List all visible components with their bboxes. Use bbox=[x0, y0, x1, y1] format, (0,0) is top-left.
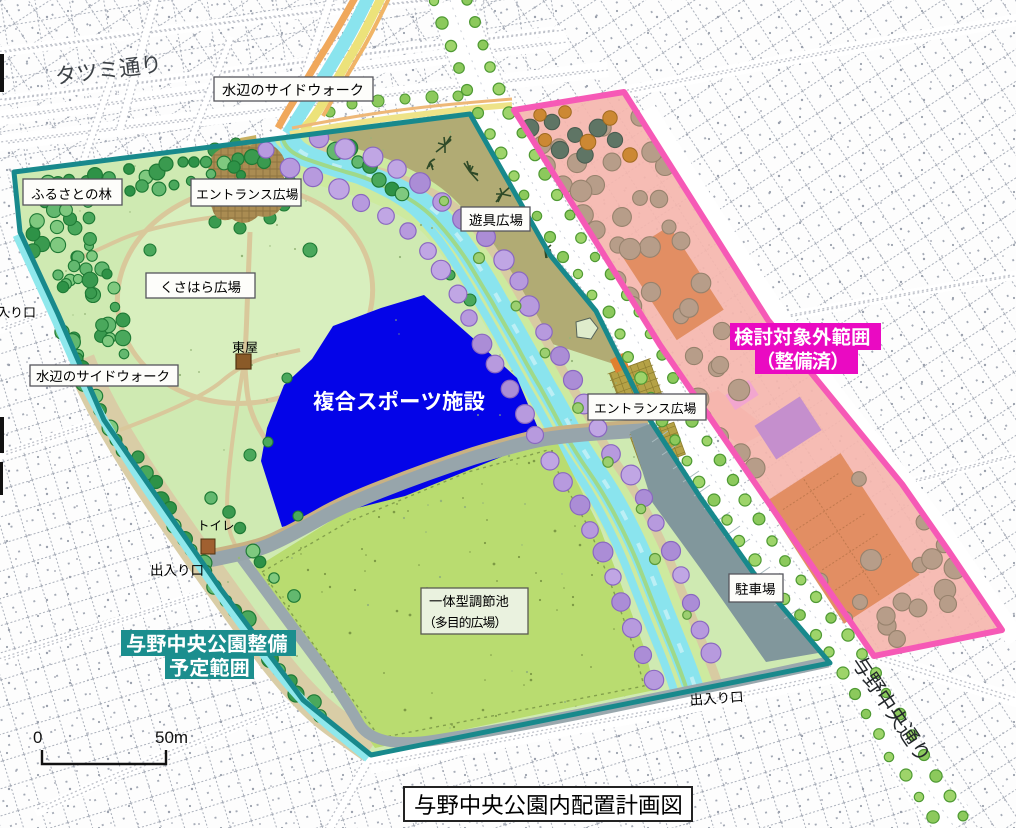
svg-text:0: 0 bbox=[33, 728, 42, 747]
svg-text:50m: 50m bbox=[155, 728, 188, 747]
